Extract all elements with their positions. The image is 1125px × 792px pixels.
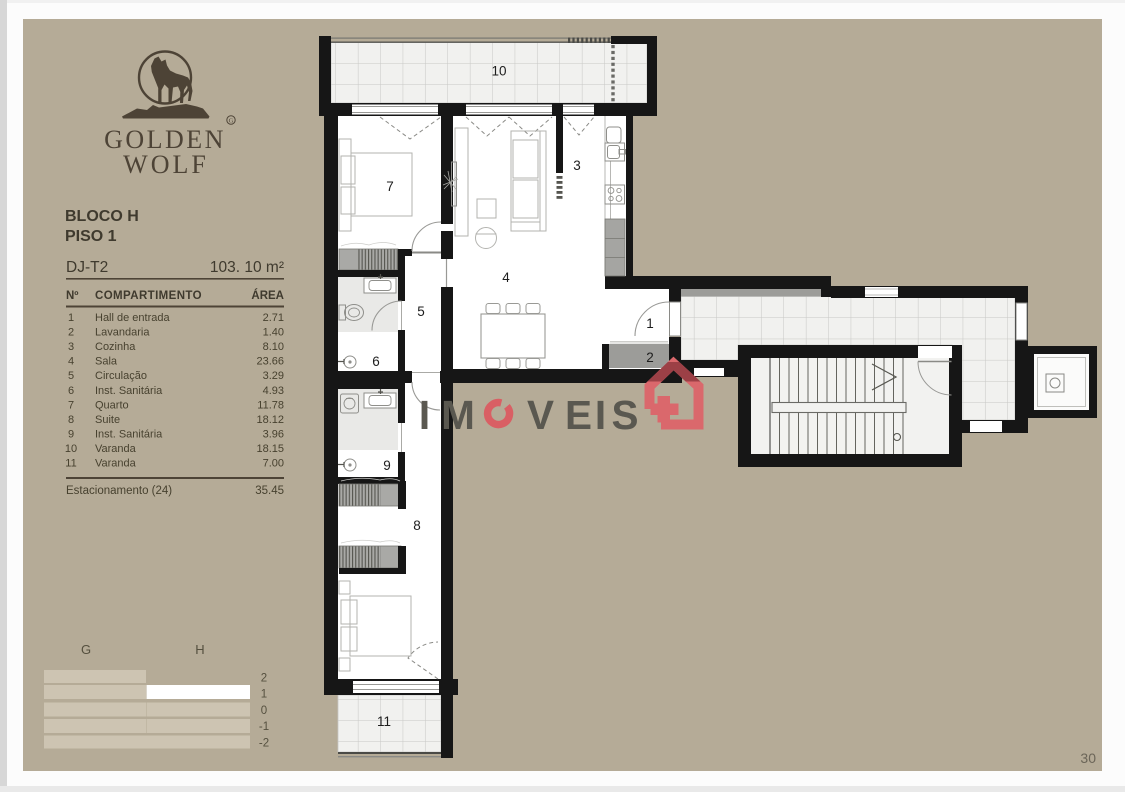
- svg-text:8: 8: [413, 518, 421, 533]
- svg-text:10: 10: [65, 443, 77, 455]
- svg-text:G: G: [229, 118, 234, 125]
- svg-text:7.00: 7.00: [263, 458, 284, 470]
- svg-text:2: 2: [68, 327, 74, 339]
- svg-text:COMPARTIMENTO: COMPARTIMENTO: [95, 290, 202, 302]
- svg-text:2: 2: [261, 673, 267, 685]
- svg-text:6: 6: [68, 385, 74, 397]
- svg-text:7: 7: [68, 399, 74, 411]
- svg-text:3: 3: [68, 341, 74, 353]
- svg-text:I: I: [419, 392, 430, 438]
- svg-text:Quarto: Quarto: [95, 399, 129, 411]
- svg-text:8.10: 8.10: [263, 341, 284, 353]
- svg-text:Cozinha: Cozinha: [95, 341, 136, 353]
- svg-text:-2: -2: [259, 738, 269, 750]
- svg-text:0: 0: [261, 705, 267, 717]
- svg-text:Lavandaria: Lavandaria: [95, 327, 150, 339]
- svg-text:BLOCO H: BLOCO H: [65, 208, 139, 225]
- svg-text:Hall de entrada: Hall de entrada: [95, 312, 170, 324]
- svg-text:3: 3: [573, 158, 581, 173]
- svg-text:PISO 1: PISO 1: [65, 228, 117, 245]
- svg-text:35.45: 35.45: [255, 485, 284, 497]
- svg-text:3.29: 3.29: [263, 370, 284, 382]
- svg-text:2.71: 2.71: [263, 312, 284, 324]
- svg-text:DJ-T2: DJ-T2: [66, 259, 108, 276]
- svg-text:4: 4: [68, 356, 74, 368]
- svg-text:M: M: [441, 392, 475, 438]
- svg-text:1.40: 1.40: [263, 327, 284, 339]
- svg-text:18.15: 18.15: [256, 443, 284, 455]
- svg-text:G: G: [81, 642, 91, 657]
- svg-text:Inst. Sanitária: Inst. Sanitária: [95, 385, 163, 397]
- svg-text:Varanda: Varanda: [95, 443, 137, 455]
- svg-text:10: 10: [491, 64, 506, 79]
- svg-text:Varanda: Varanda: [95, 458, 137, 470]
- svg-text:6: 6: [372, 354, 380, 369]
- svg-text:4: 4: [502, 270, 510, 285]
- svg-text:V: V: [527, 392, 554, 438]
- svg-text:I: I: [595, 392, 606, 438]
- svg-text:11.78: 11.78: [257, 399, 284, 411]
- svg-text:18.12: 18.12: [256, 414, 284, 426]
- svg-text:WOLF: WOLF: [123, 150, 209, 179]
- svg-text:Circulação: Circulação: [95, 370, 147, 382]
- svg-text:1: 1: [68, 312, 74, 324]
- svg-text:5: 5: [417, 304, 425, 319]
- svg-text:11: 11: [65, 458, 76, 470]
- svg-text:E: E: [565, 392, 592, 438]
- svg-text:1: 1: [646, 316, 654, 331]
- svg-text:23.66: 23.66: [256, 356, 284, 368]
- svg-text:Nº: Nº: [66, 290, 79, 302]
- svg-text:H: H: [195, 642, 204, 657]
- svg-text:1: 1: [261, 689, 267, 701]
- svg-text:Estacionamento (24): Estacionamento (24): [66, 485, 172, 497]
- svg-text:8: 8: [68, 414, 74, 426]
- svg-text:-1: -1: [259, 721, 269, 733]
- svg-text:Sala: Sala: [95, 356, 118, 368]
- svg-text:7: 7: [386, 179, 394, 194]
- svg-text:ÁREA: ÁREA: [251, 289, 284, 302]
- svg-text:103. 10 m²: 103. 10 m²: [210, 259, 284, 276]
- svg-text:3.96: 3.96: [263, 428, 284, 440]
- svg-text:S: S: [611, 392, 638, 438]
- svg-text:9: 9: [383, 458, 391, 473]
- svg-text:11: 11: [377, 714, 391, 729]
- svg-text:Inst. Sanitária: Inst. Sanitária: [95, 428, 163, 440]
- svg-text:4.93: 4.93: [263, 385, 284, 397]
- svg-text:5: 5: [68, 370, 74, 382]
- svg-text:30: 30: [1080, 750, 1096, 766]
- svg-text:9: 9: [68, 428, 74, 440]
- svg-text:Suite: Suite: [95, 414, 120, 426]
- svg-text:2: 2: [646, 350, 654, 365]
